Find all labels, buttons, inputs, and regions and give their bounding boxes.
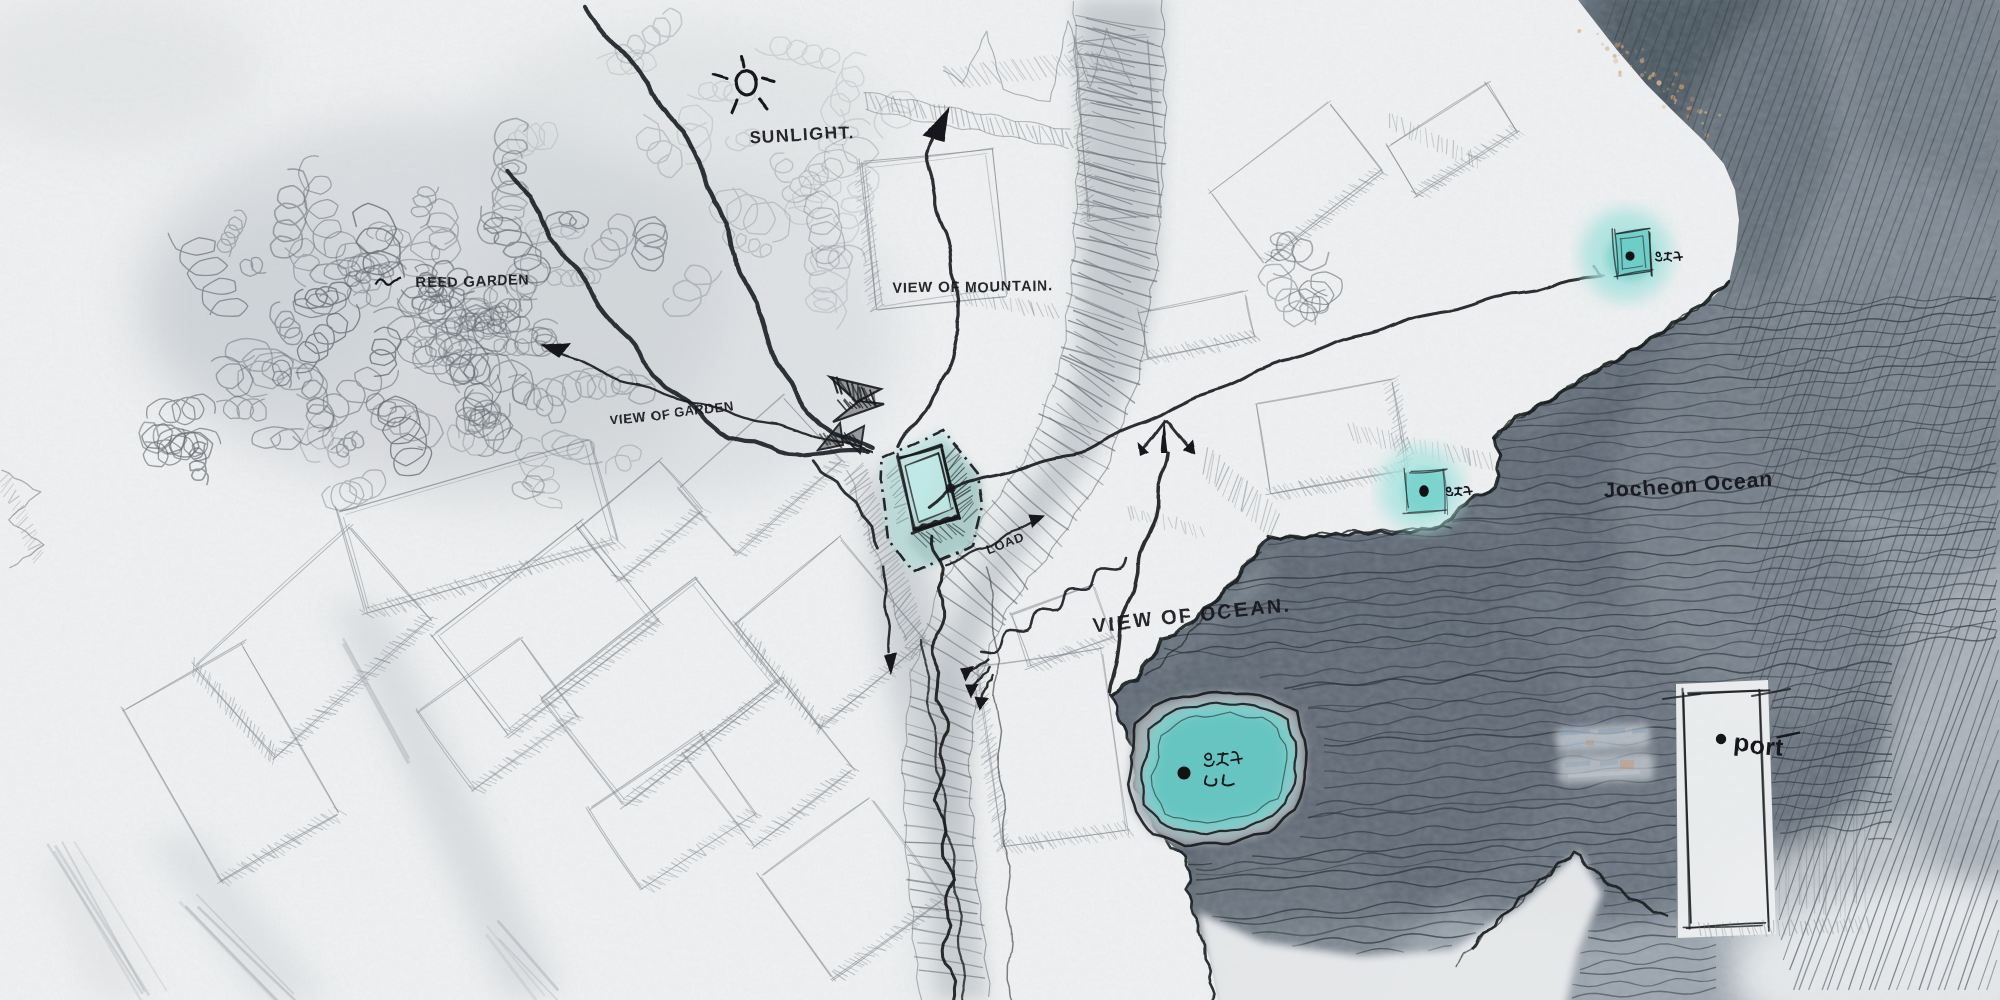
svg-text:VIEW OF MOUNTAIN.: VIEW OF MOUNTAIN. bbox=[893, 278, 1053, 297]
svg-text:port: port bbox=[1733, 730, 1784, 761]
